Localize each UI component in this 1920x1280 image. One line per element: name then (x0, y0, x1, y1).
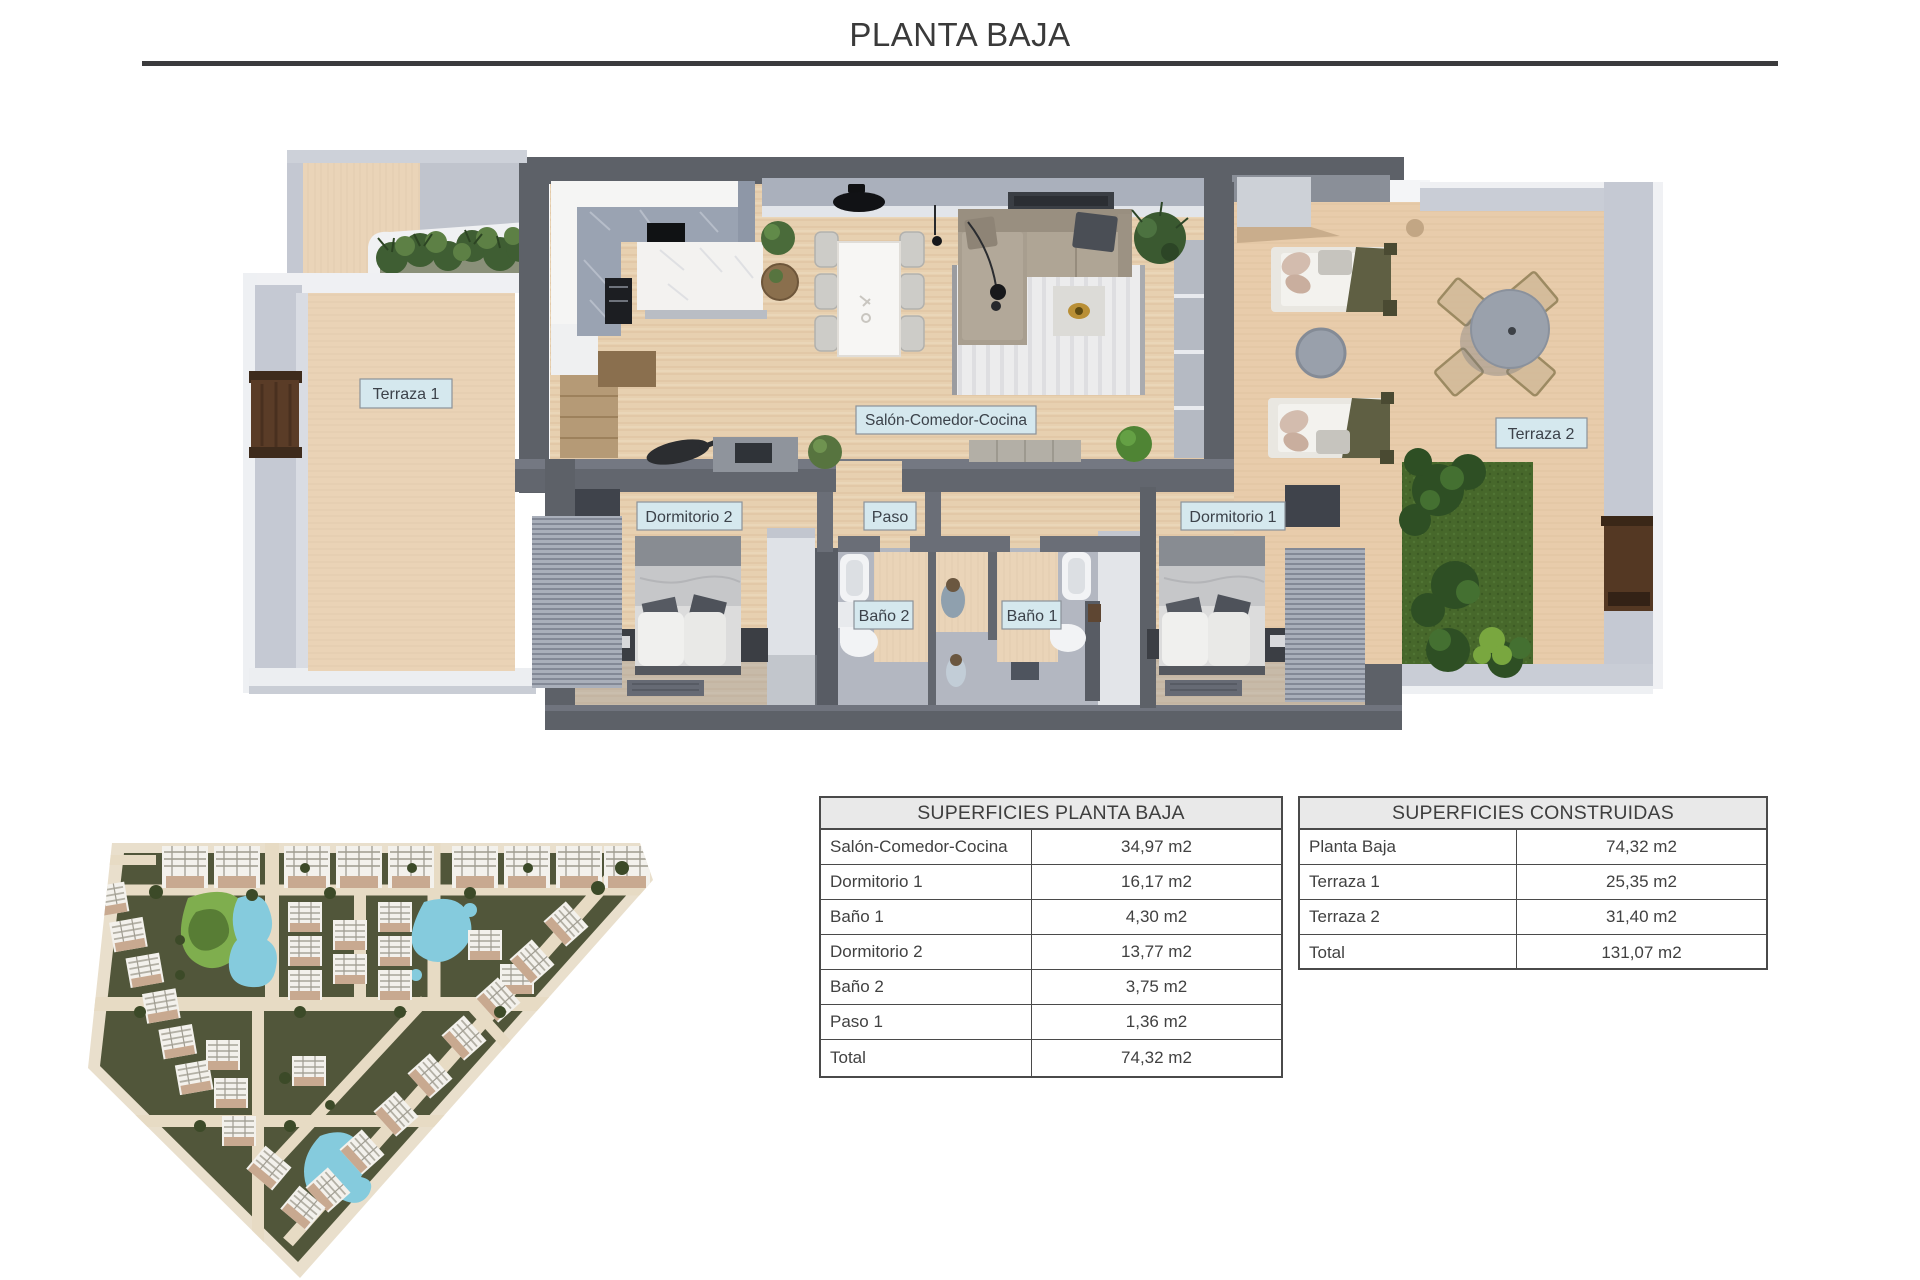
svg-text:Paso: Paso (872, 509, 909, 526)
svg-text:Baño 1: Baño 1 (1007, 608, 1058, 625)
svg-text:Salón-Comedor-Cocina: Salón-Comedor-Cocina (865, 412, 1027, 429)
svg-text:Baño 2: Baño 2 (859, 608, 910, 625)
svg-text:Dormitorio 2: Dormitorio 2 (645, 509, 732, 526)
svg-text:Dormitorio 1: Dormitorio 1 (1189, 509, 1276, 526)
svg-text:Terraza 2: Terraza 2 (1508, 426, 1575, 443)
svg-text:Terraza 1: Terraza 1 (373, 386, 440, 403)
